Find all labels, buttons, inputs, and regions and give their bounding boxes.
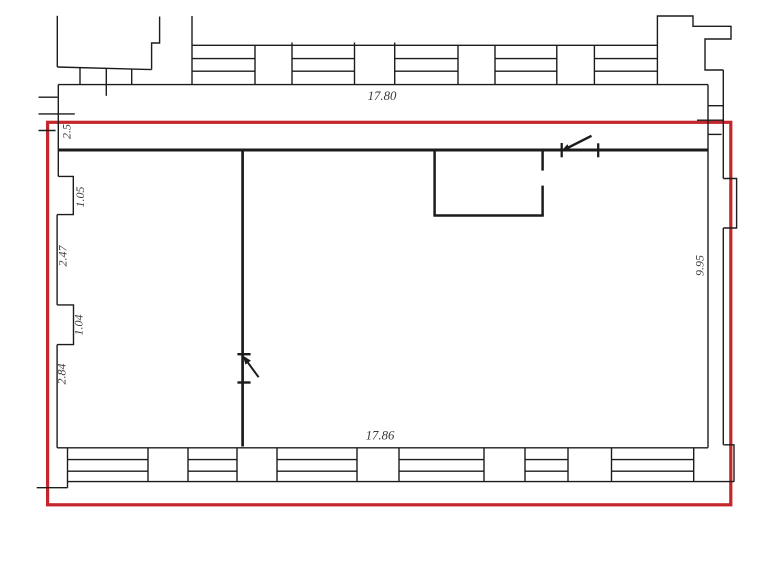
svg-text:2.84: 2.84 (55, 364, 69, 385)
svg-text:1.05: 1.05 (73, 187, 87, 208)
svg-text:9.95: 9.95 (693, 255, 707, 276)
svg-text:17.86: 17.86 (366, 429, 395, 443)
svg-text:17.80: 17.80 (368, 89, 397, 103)
svg-text:2.47: 2.47 (56, 245, 70, 267)
svg-text:2.5: 2.5 (60, 124, 74, 139)
svg-text:1.04: 1.04 (72, 315, 86, 336)
